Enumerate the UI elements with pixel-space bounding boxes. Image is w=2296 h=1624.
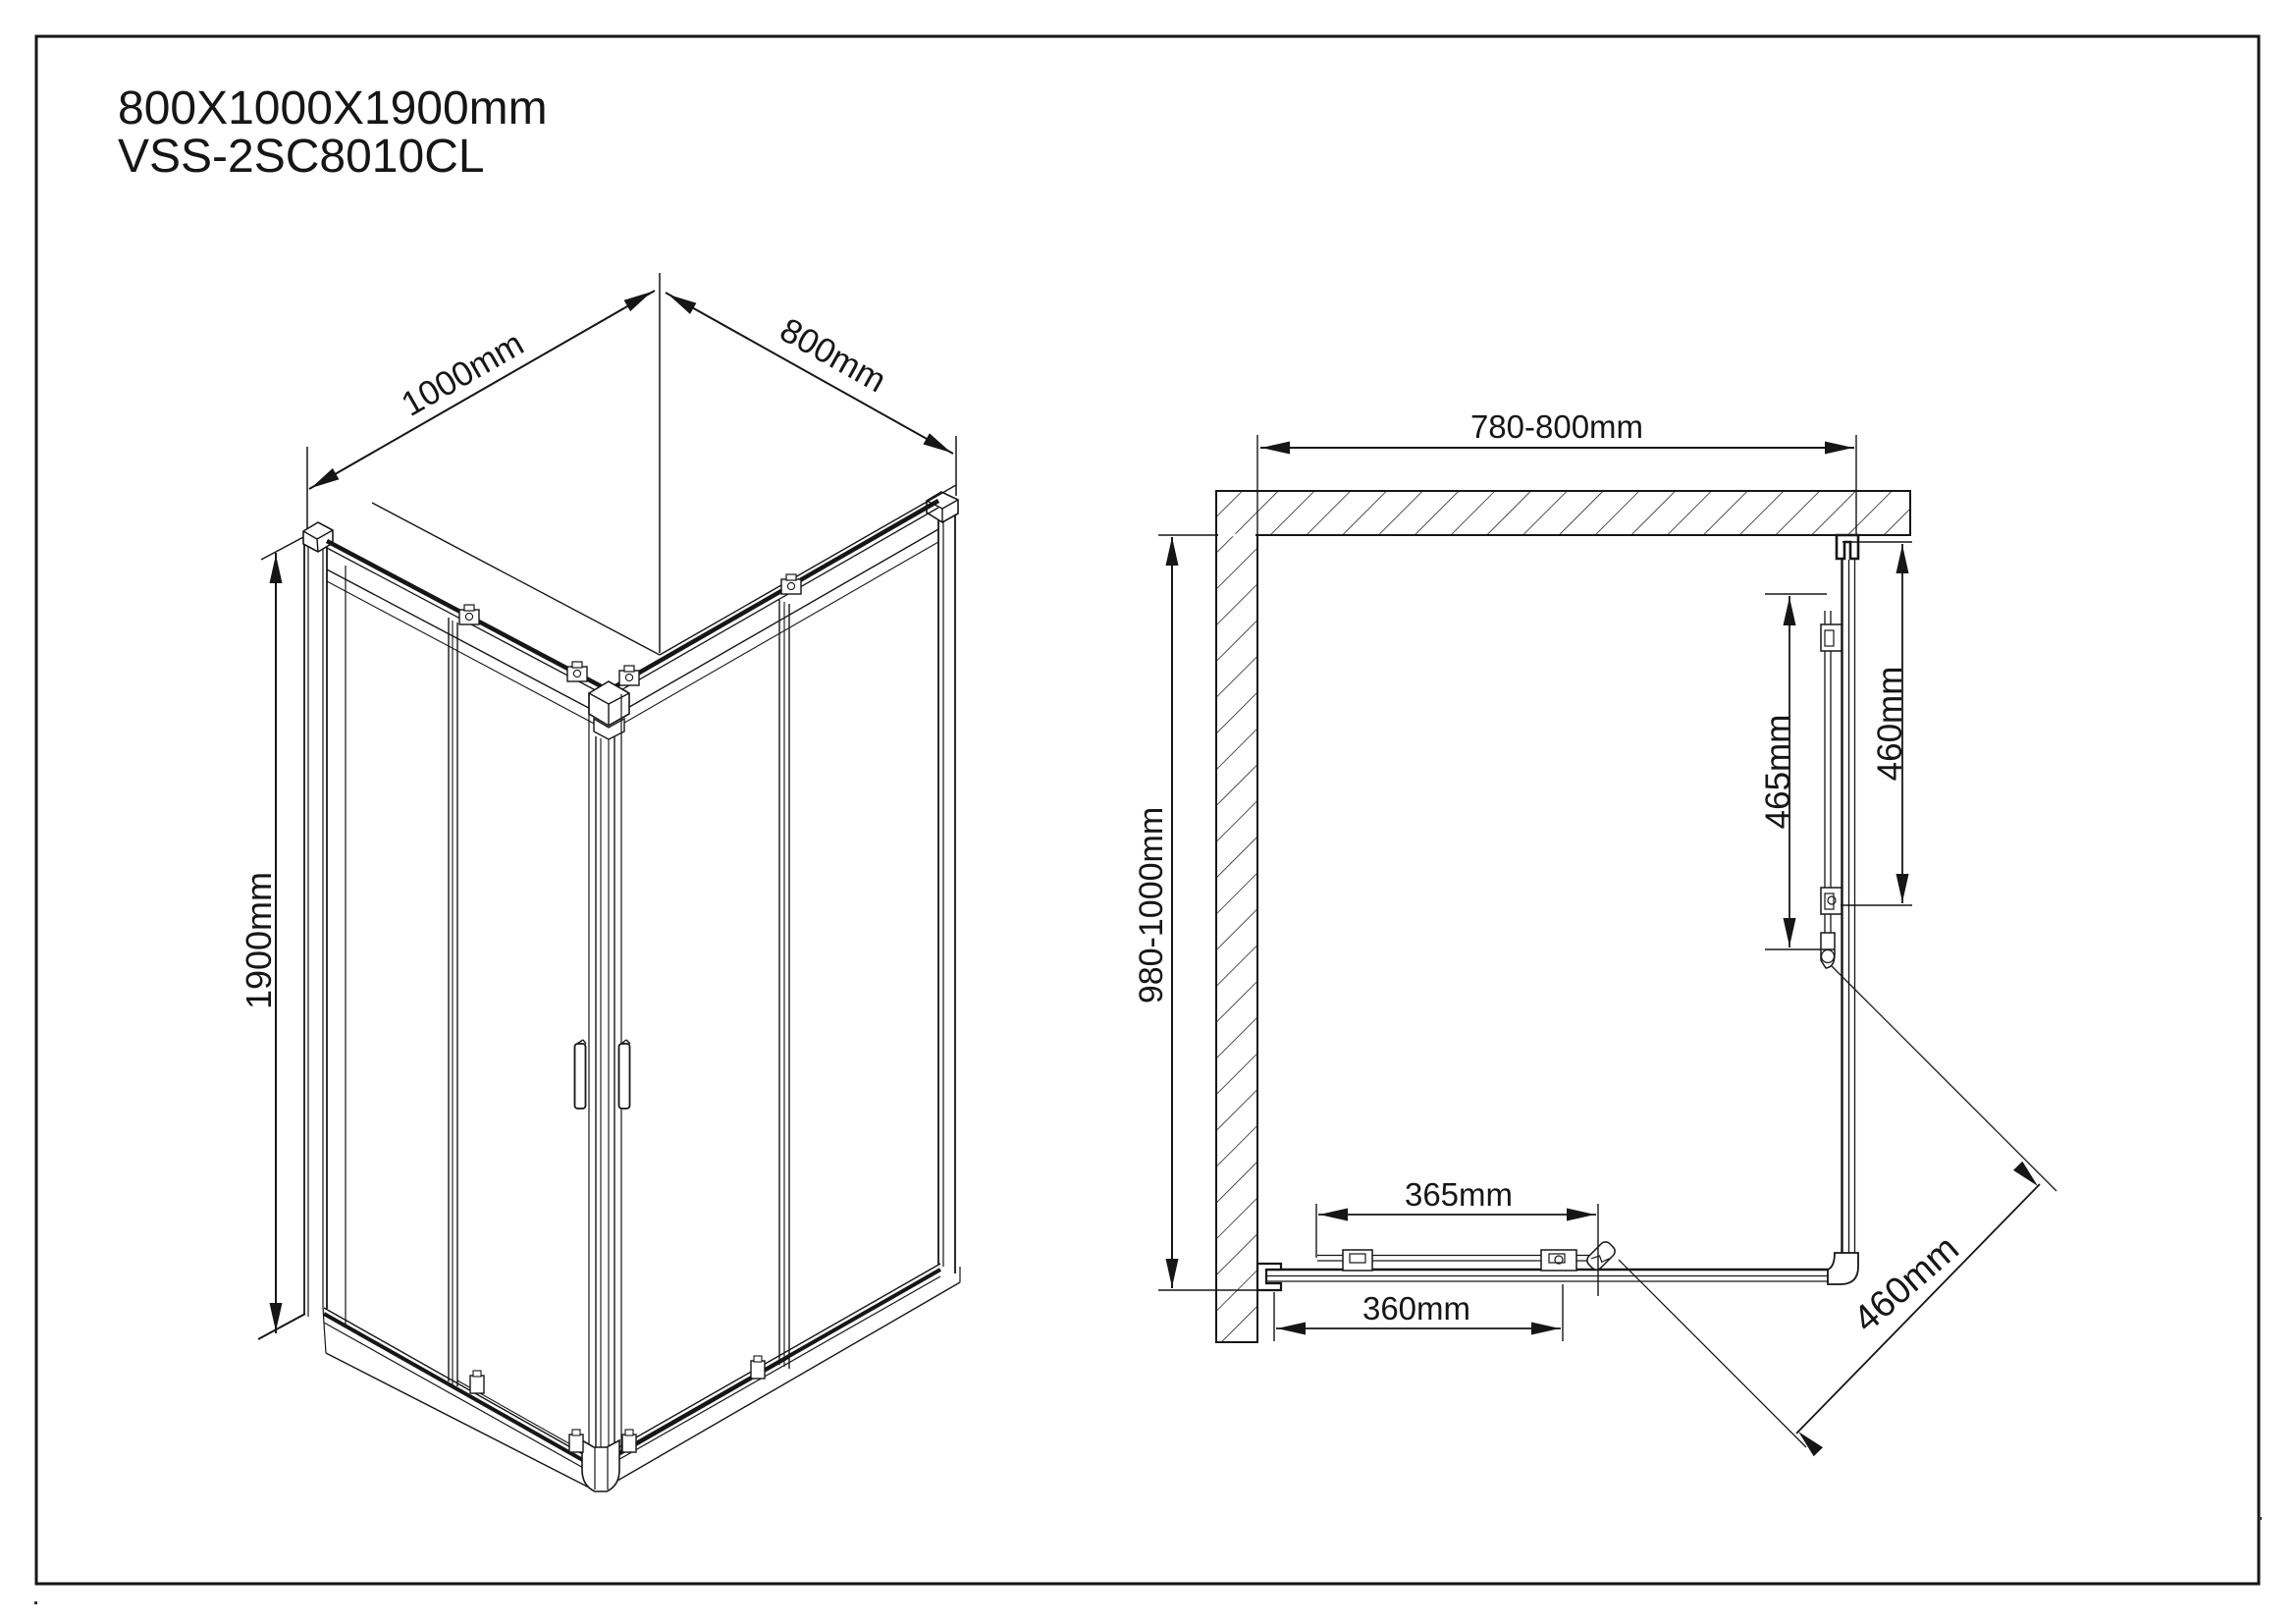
svg-text:780-800mm: 780-800mm bbox=[1470, 408, 1643, 445]
svg-text:1900mm: 1900mm bbox=[239, 872, 279, 1009]
svg-text:VSS-2SC8010CL: VSS-2SC8010CL bbox=[118, 131, 485, 183]
svg-text:460mm: 460mm bbox=[1871, 667, 1909, 782]
svg-text:360mm: 360mm bbox=[1362, 1290, 1470, 1326]
svg-text:800X1000X1900mm: 800X1000X1900mm bbox=[118, 82, 548, 135]
svg-text:465mm: 465mm bbox=[1759, 715, 1797, 830]
svg-text:980-1000mm: 980-1000mm bbox=[1133, 807, 1170, 1003]
svg-text:365mm: 365mm bbox=[1405, 1176, 1513, 1213]
